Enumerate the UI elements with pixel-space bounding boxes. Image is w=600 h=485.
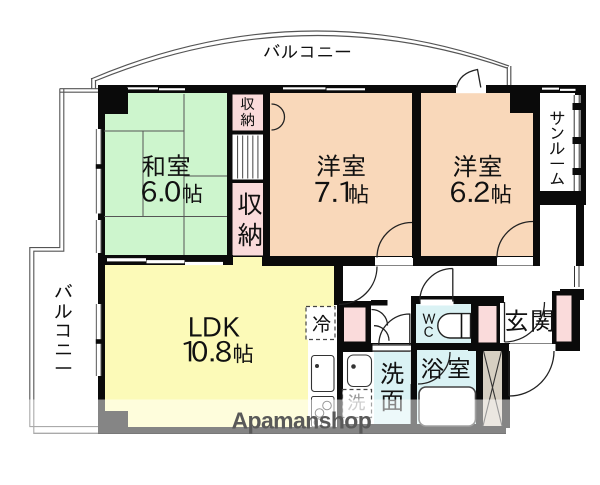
svg-text:Apamanshop: Apamanshop bbox=[232, 408, 372, 434]
